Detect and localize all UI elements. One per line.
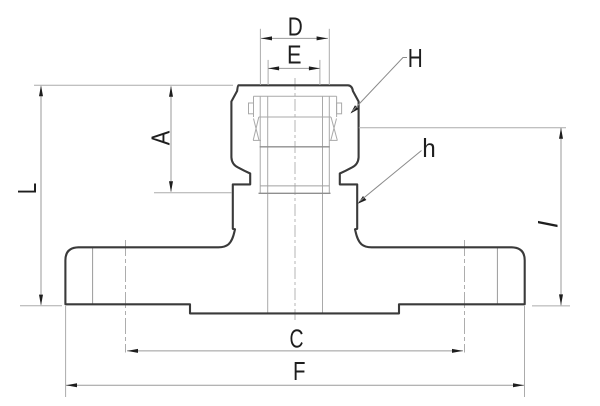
- svg-text:F: F: [293, 356, 306, 386]
- svg-text:L: L: [12, 183, 42, 195]
- svg-text:h: h: [422, 133, 436, 163]
- svg-text:E: E: [287, 39, 302, 69]
- svg-text:l: l: [534, 221, 564, 228]
- svg-text:D: D: [288, 11, 303, 41]
- svg-text:C: C: [290, 324, 304, 354]
- svg-text:H: H: [408, 43, 423, 73]
- svg-text:A: A: [146, 130, 176, 145]
